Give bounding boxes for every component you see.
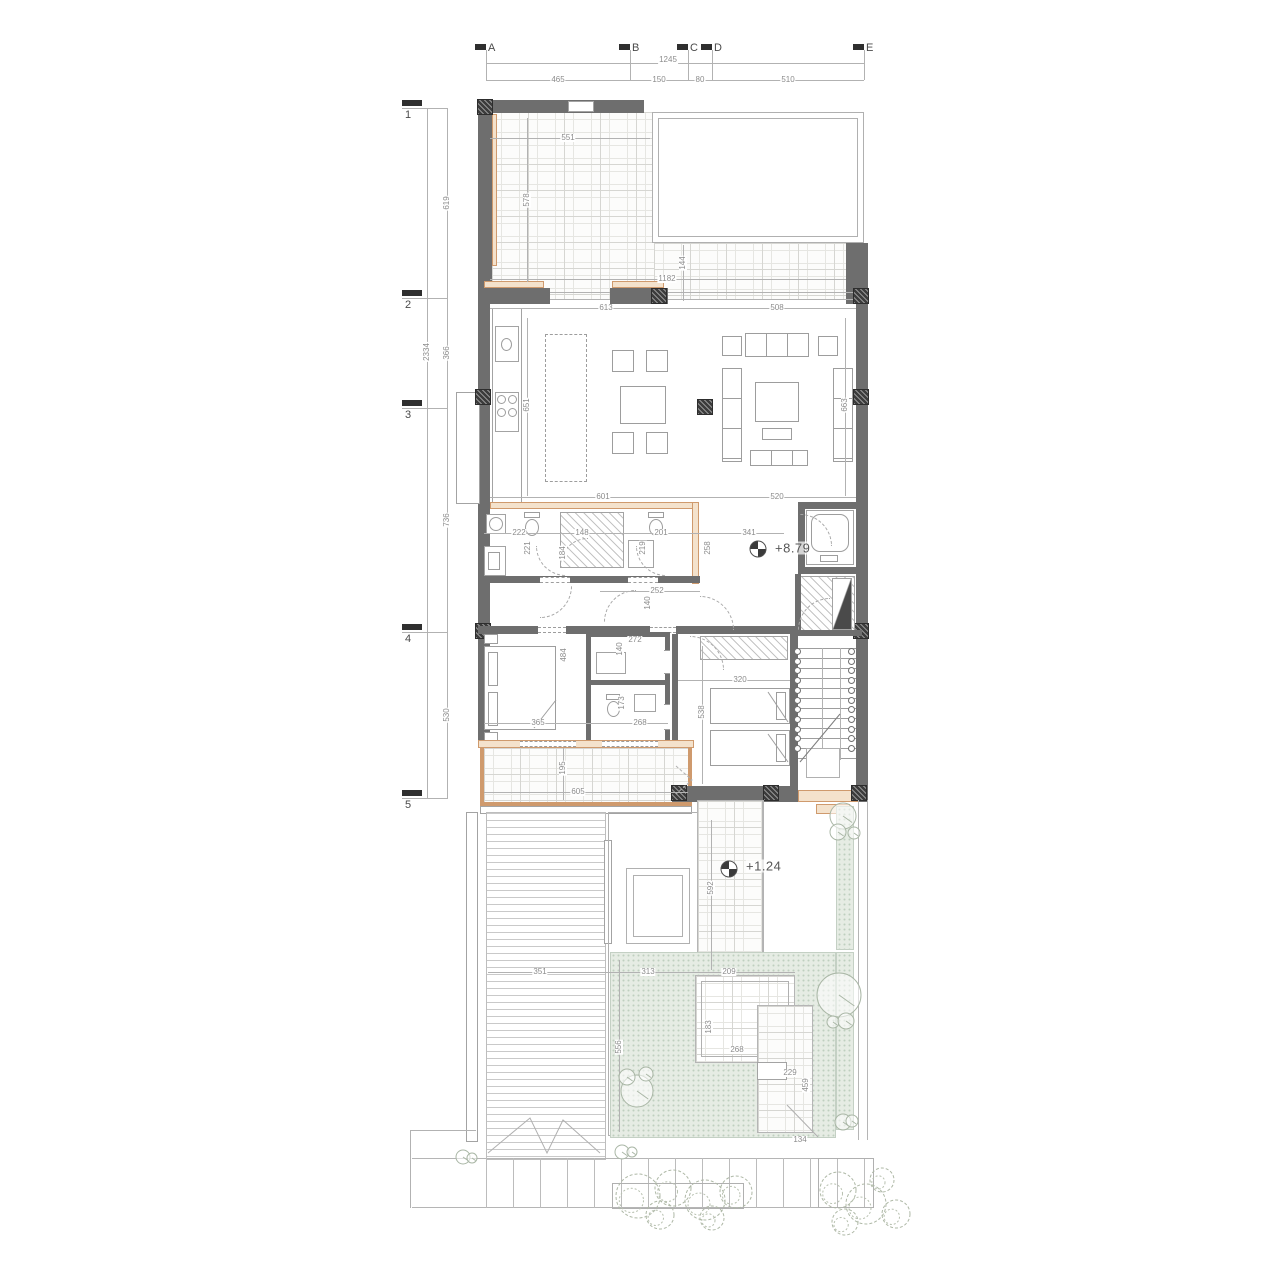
dining-chair: [646, 432, 668, 454]
shower-seat: [488, 552, 500, 570]
bush-icon: [882, 1200, 910, 1228]
balcony: [480, 748, 692, 806]
pillow: [488, 692, 498, 726]
stair-step-dot: [794, 648, 801, 655]
level-symbol: [750, 541, 767, 558]
dimension-label: 365: [530, 719, 545, 727]
grid-letter: C: [690, 43, 698, 54]
pillow: [776, 734, 786, 762]
roof-void-inner-line: [658, 118, 858, 237]
pillow: [776, 692, 786, 720]
bathroom-block-walls: [586, 632, 670, 746]
toilet-tank: [648, 512, 664, 518]
dimension-label: 140: [644, 595, 652, 610]
grid-flag-top: [677, 44, 688, 50]
grid-top-segment-rail: [486, 80, 864, 81]
balcony-top-wall: [478, 740, 694, 748]
dimension-label: 578: [523, 192, 531, 207]
exterior-shaft: [456, 392, 480, 504]
pillow: [488, 652, 498, 686]
terrace-left-wall: [478, 100, 492, 304]
burner-icon: [497, 408, 506, 417]
dimension-label: 184: [559, 545, 567, 560]
bathroom-block-divider: [586, 680, 670, 685]
dim-line: [484, 533, 784, 534]
dimension-label: 272: [627, 636, 642, 644]
dimension-label: 520: [769, 493, 784, 501]
dimension-label: 459: [802, 1077, 810, 1092]
column: [476, 390, 490, 404]
door-swing: [540, 586, 572, 618]
dimension-label: 663: [841, 397, 849, 412]
column: [672, 786, 686, 800]
site-left-edge: [410, 1130, 411, 1208]
window-opening: [520, 741, 576, 747]
grid-segment-dim: 80: [695, 76, 706, 84]
bush-inner-icon: [702, 1214, 715, 1227]
grid-letter: A: [488, 43, 495, 54]
bush-inner-icon: [884, 1209, 899, 1224]
grid-flag-top: [475, 44, 486, 50]
dimension-label: 351: [532, 968, 547, 976]
dimension-label: 651: [523, 397, 531, 412]
sofa: [745, 333, 809, 357]
hedge-strip: [836, 806, 854, 950]
dimension-label: 268: [632, 719, 647, 727]
stair-step-dot: [848, 687, 855, 694]
dimension-label: 508: [769, 304, 784, 312]
tree-icon: [627, 1147, 637, 1157]
column-freestanding: [698, 400, 712, 414]
grid-segment-dim: 510: [780, 76, 795, 84]
dining-chair: [612, 432, 634, 454]
grid-flag-left: [402, 100, 422, 106]
garage-roof: [486, 812, 606, 1160]
stair-landing: [806, 748, 840, 778]
bath-strip-bottom-wall: [478, 576, 700, 583]
door-swing: [700, 596, 734, 630]
column: [764, 786, 778, 800]
grid-number: 1: [405, 110, 411, 121]
dimension-label: 268: [729, 1046, 744, 1054]
bench-small: [762, 428, 792, 440]
site-right-boundary: [858, 800, 868, 1140]
dimension-label: 148: [574, 529, 589, 537]
dimension-label: 605: [570, 788, 585, 796]
dimension-label: 1182: [657, 275, 676, 283]
dimension-label: 144: [679, 255, 687, 270]
burner-icon: [508, 395, 517, 404]
stair-treads: [798, 648, 856, 760]
grid-flag-top: [619, 44, 630, 50]
dimension-label: 221: [524, 540, 532, 555]
stair-step-dot: [848, 658, 855, 665]
dimension-label: 613: [598, 304, 613, 312]
duct-shaft: [832, 578, 852, 630]
grid-overall-dim: 2334: [423, 342, 431, 362]
grid-number: 3: [405, 410, 411, 421]
kitchen-island: [545, 334, 587, 482]
dimension-label: 484: [560, 647, 568, 662]
corridor-wall-seg: [478, 626, 538, 634]
dim-line: [490, 308, 856, 309]
dining-chair: [612, 350, 634, 372]
stair-step-dot: [794, 716, 801, 723]
dimension-label: 183: [705, 1019, 713, 1034]
dimension-label: 601: [595, 493, 610, 501]
dimension-label: 320: [732, 676, 747, 684]
burner-icon: [497, 395, 506, 404]
tree-icon: [615, 1145, 629, 1159]
side-table: [818, 336, 838, 356]
grid-overall-dim: 1245: [658, 56, 678, 64]
coffee-table: [755, 382, 799, 422]
dimension-label: 219: [639, 540, 647, 555]
grid-letter: B: [632, 43, 639, 54]
column: [852, 786, 866, 800]
stair-step-dot: [794, 658, 801, 665]
grid-tick: [486, 50, 487, 80]
kitchen-sink-basin: [501, 338, 512, 351]
terrace-wall-lining: [492, 114, 497, 266]
door-opening: [664, 704, 670, 730]
burner-icon: [508, 408, 517, 417]
dimension-label: 551: [560, 134, 575, 142]
level-value: +8.79: [775, 542, 810, 555]
column: [854, 390, 868, 404]
bathroom-right-top-wall: [798, 502, 856, 509]
hall-left-wall: [692, 502, 699, 584]
dimension-label: 556: [615, 1039, 623, 1054]
grid-flag-left: [402, 624, 422, 630]
stair-step-dot: [794, 687, 801, 694]
dimension-label: 538: [698, 704, 706, 719]
dining-table: [620, 386, 666, 424]
tree-branch-line: [632, 1152, 636, 1155]
door-opening: [540, 577, 570, 583]
grid-tick: [712, 50, 713, 80]
dimension-label: 209: [721, 968, 736, 976]
grid-flag-top: [853, 44, 864, 50]
washbasin: [634, 694, 656, 712]
stair-step-dot: [848, 648, 855, 655]
bathtub-faucet: [820, 555, 838, 562]
site-left-line: [410, 1130, 476, 1131]
bottom-wall-tan: [798, 790, 858, 802]
toilet-tank: [524, 512, 540, 518]
level-value: +1.24: [746, 860, 781, 873]
grid-flag-top: [701, 44, 712, 50]
window-opening: [602, 741, 658, 747]
door-opening: [628, 577, 658, 583]
bush-icon: [832, 1209, 858, 1235]
right-exterior-wall: [856, 304, 868, 802]
shelf-unit-left: [722, 368, 742, 462]
bush-inner-icon: [834, 1217, 848, 1231]
grid-tick: [630, 50, 631, 80]
bush-icon: [700, 1206, 724, 1230]
dim-line: [490, 497, 856, 498]
grid-letter: D: [714, 43, 722, 54]
grid-left-segment-rail: [447, 108, 448, 798]
column: [652, 289, 666, 303]
dimension-label: 341: [741, 529, 756, 537]
sill-mid: [612, 281, 664, 288]
stair-step-dot: [794, 726, 801, 733]
grid-left-overall-rail: [427, 108, 428, 798]
bathroom-right-bottom-wall: [798, 567, 856, 574]
stair-step-dot: [848, 745, 855, 752]
nightstand: [484, 634, 498, 644]
dim-line: [683, 245, 684, 301]
grid-segment-dim: 150: [651, 76, 666, 84]
stair-stringer-line: [840, 648, 841, 760]
grid-segment-dim: 465: [550, 76, 565, 84]
tree-branch-line: [622, 1152, 627, 1156]
dimension-label: 222: [511, 529, 526, 537]
sill-left: [484, 281, 544, 288]
dimension-label: 258: [704, 540, 712, 555]
level-symbol: [721, 861, 738, 878]
bath-strip-top-wall: [490, 502, 696, 509]
dimension-label: 134: [792, 1136, 807, 1144]
grid-number: 2: [405, 300, 411, 311]
dimension-label: 140: [616, 641, 624, 656]
bush-inner-icon: [648, 1210, 663, 1225]
dimension-label: 252: [649, 587, 664, 595]
corridor-wall-seg: [676, 626, 798, 634]
grid-tick: [688, 50, 689, 80]
grid-flag-left: [402, 290, 422, 296]
grid-segment-dim: 619: [443, 195, 451, 210]
grid-segment-dim: 530: [443, 707, 451, 722]
wardrobe-right-bottom-wall: [795, 630, 862, 636]
grid-segment-dim: 366: [443, 345, 451, 360]
side-table: [722, 336, 742, 356]
stair-step-dot: [794, 745, 801, 752]
terrace-top-window: [568, 101, 594, 112]
grid-flag-left: [402, 400, 422, 406]
stair-step-dot: [848, 726, 855, 733]
terrace-top-wall: [478, 100, 644, 113]
grid-number: 5: [405, 800, 411, 811]
grid-segment-dim: 736: [443, 512, 451, 527]
stair-stringer-line: [822, 648, 823, 760]
grid-flag-left: [402, 790, 422, 796]
dimension-label: 229: [782, 1069, 797, 1077]
shelf-unit-right: [833, 368, 853, 462]
dining-chair: [646, 350, 668, 372]
door-swing: [604, 590, 636, 622]
dimension-label: 313: [640, 968, 655, 976]
dimension-label: 201: [653, 529, 668, 537]
facade-pier-left: [478, 288, 550, 304]
stair-step-dot: [794, 697, 801, 704]
stair-step-dot: [848, 716, 855, 723]
hedge-strip: [836, 952, 854, 1130]
grid-tick: [864, 50, 865, 80]
sofa-bench: [750, 450, 808, 466]
skylight-inner: [633, 875, 683, 937]
planter-bed: [612, 1183, 744, 1209]
column: [854, 289, 868, 303]
dimension-label: 173: [618, 695, 626, 710]
washing-machine-drum: [489, 517, 503, 531]
floor-plan-sheet: { "meta": { "drawing_type": "architectur…: [0, 0, 1280, 1280]
grid-letter: E: [866, 43, 873, 54]
dimension-label: 195: [559, 760, 567, 775]
dimension-label: 592: [707, 880, 715, 895]
grid-number: 4: [405, 634, 411, 645]
planter-bed: [818, 1158, 874, 1208]
column: [478, 100, 492, 114]
door-opening: [664, 650, 670, 674]
stair-step-dot: [848, 697, 855, 704]
dim-line: [484, 792, 688, 793]
door-opening: [538, 627, 566, 633]
side-path-strip: [466, 812, 478, 1142]
